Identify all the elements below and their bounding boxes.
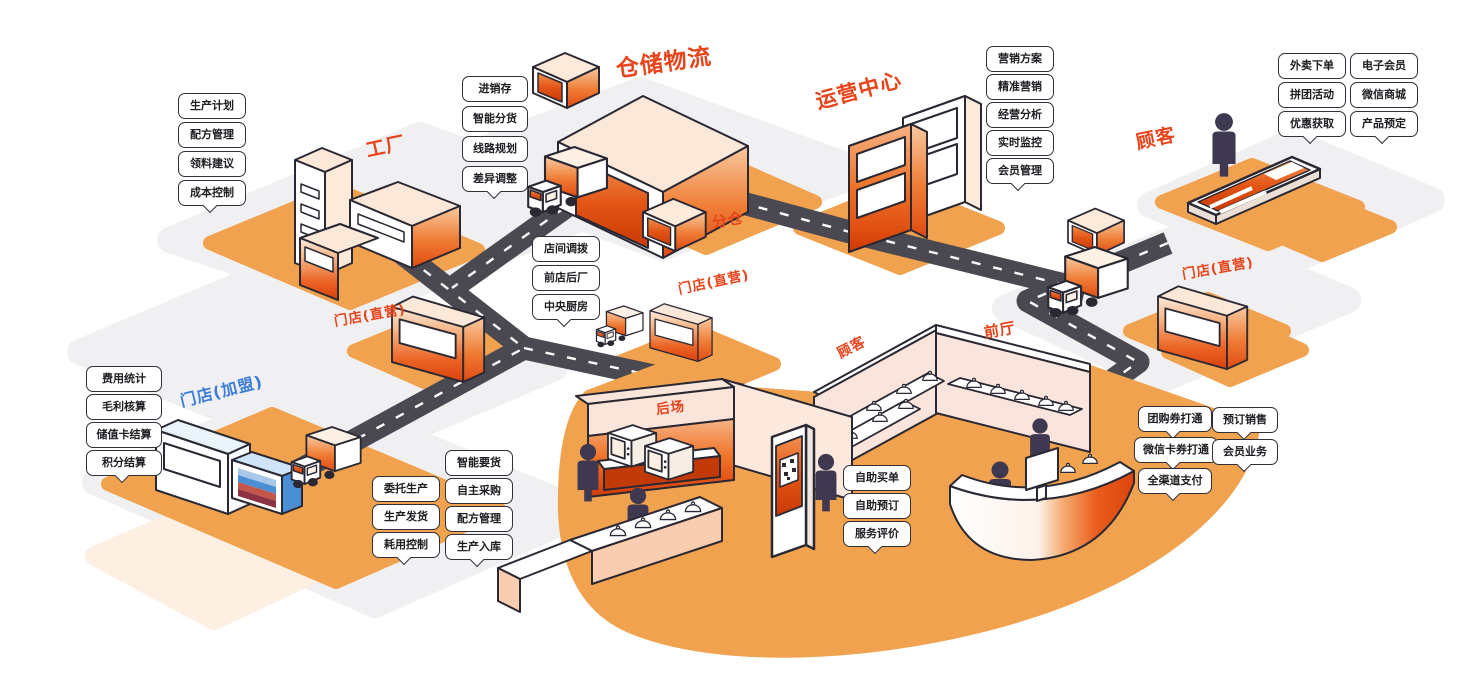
allocation-feature-label: 中央厨房 — [532, 294, 600, 320]
production-feature-label: 配方管理 — [445, 506, 513, 532]
warehouse-feature-label: 智能分货 — [462, 106, 528, 132]
franchise-feature-label: 储值卡结算 — [86, 422, 162, 448]
customer-feature-label: 电子会员 — [1350, 53, 1418, 79]
payment-feature-label: 微信卡券打通 — [1134, 437, 1218, 463]
oven — [645, 438, 693, 479]
back-area-title: 后场 — [655, 395, 686, 418]
payment-feature-label: 团购券打通 — [1138, 406, 1212, 432]
factory-feature-label: 配方管理 — [178, 122, 246, 148]
operation-feature-label: 营销方案 — [986, 46, 1054, 72]
customer-feature-label: 外卖下单 — [1278, 53, 1346, 79]
delivery-truck — [596, 306, 643, 347]
operation-feature-label: 会员管理 — [986, 158, 1054, 184]
production-feature-label: 生产发货 — [372, 504, 440, 530]
production-feature-label: 自主采购 — [445, 478, 513, 504]
customer-feature-label: 拼团活动 — [1278, 82, 1346, 108]
factory-feature-label: 生产计划 — [178, 93, 246, 119]
self-service-kiosk — [772, 425, 814, 557]
franchise-feature-label: 毛利核算 — [86, 394, 162, 420]
allocation-feature-label: 前店后厂 — [532, 265, 600, 291]
operation-feature-label: 精准营销 — [986, 74, 1054, 100]
franchise-feature-label: 积分结算 — [86, 450, 162, 476]
production-feature-label: 智能要货 — [445, 450, 513, 476]
factory-feature-label: 领料建议 — [178, 151, 246, 177]
franchise-feature-label: 费用统计 — [86, 366, 162, 392]
production-feature-label: 耗用控制 — [372, 532, 440, 558]
customer-feature-label: 优惠获取 — [1278, 111, 1346, 137]
warehouse-feature-label: 线路规划 — [462, 136, 528, 162]
warehouse-feature-label: 差异调整 — [462, 166, 528, 192]
factory-feature-label: 成本控制 — [178, 180, 246, 206]
payment-feature-label: 全渠道支付 — [1138, 468, 1212, 494]
self-service-feature-label: 自助买单 — [843, 465, 911, 491]
payment-feature-label: 会员业务 — [1212, 439, 1278, 465]
warehouse-feature-label: 进销存 — [462, 76, 528, 102]
customer-feature-label: 产品预定 — [1350, 111, 1418, 137]
production-feature-label: 委托生产 — [372, 476, 440, 502]
operation-feature-label: 实时监控 — [986, 130, 1054, 156]
self-service-feature-label: 服务评价 — [843, 521, 911, 547]
supply-chain-diagram: 工厂 仓储物流 运营中心 顾客 分仓 门店(直营) 门店(直营) 门店(直营) … — [0, 0, 1459, 688]
payment-feature-label: 预订销售 — [1212, 407, 1278, 433]
allocation-feature-label: 店间调拨 — [532, 236, 600, 262]
self-service-feature-label: 自助预订 — [843, 493, 911, 519]
production-feature-label: 生产入库 — [445, 534, 513, 560]
operation-feature-label: 经营分析 — [986, 102, 1054, 128]
customer-feature-label: 微信商城 — [1350, 82, 1418, 108]
